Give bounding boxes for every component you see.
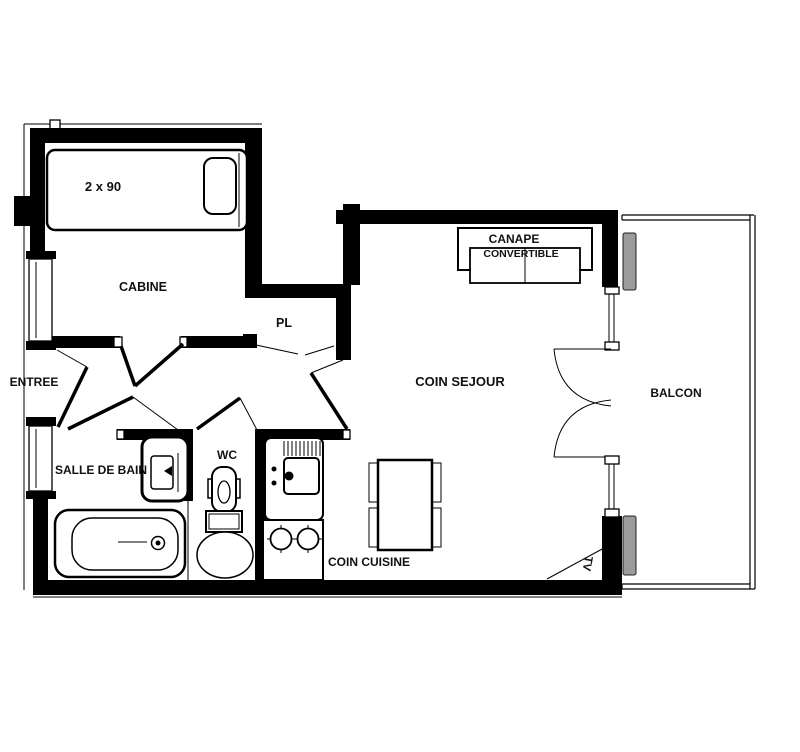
entrance-door (57, 350, 87, 427)
kitchen-unit (263, 438, 323, 580)
wc-door (197, 398, 257, 430)
balcony-facade (554, 233, 636, 575)
label-entree: ENTREE (10, 375, 59, 389)
label-convertible: CONVERTIBLE (483, 248, 558, 260)
label-salle-de-bain: SALLE DE BAIN (55, 463, 147, 477)
glazing-panel-top (623, 233, 636, 290)
label-wc: WC (217, 448, 237, 462)
label-cabine: CABINE (119, 280, 167, 294)
bathroom-door (68, 397, 178, 430)
chair (433, 508, 441, 547)
sejour-door (311, 360, 347, 429)
floorplan-svg: 2 x 90 CABINE PL ENTREE SALLE DE BAIN WC… (0, 0, 800, 752)
label-balcon: BALCON (650, 386, 701, 400)
doors (57, 344, 347, 430)
label-coin-sejour: COIN SEJOUR (415, 374, 505, 389)
chair (369, 463, 377, 502)
pillow (204, 158, 236, 214)
washbasin (142, 437, 188, 501)
glazing-panel-bottom (623, 516, 636, 575)
chair (433, 463, 441, 502)
label-pl: PL (276, 316, 292, 330)
dining-table (369, 460, 441, 550)
label-tv: TV (580, 555, 594, 572)
closet-doors (256, 345, 334, 355)
cabin-door (121, 344, 183, 386)
label-bed-size: 2 x 90 (85, 179, 121, 194)
bathtub (55, 510, 185, 577)
label-canape: CANAPE (489, 232, 540, 246)
hob-block (263, 520, 323, 580)
chair (369, 508, 377, 547)
floorplan-page: 2 x 90 CABINE PL ENTREE SALLE DE BAIN WC… (0, 0, 800, 752)
label-coin-cuisine: COIN CUISINE (328, 555, 410, 569)
toilet (197, 467, 253, 578)
balcony-railing (622, 215, 755, 589)
bed (47, 150, 247, 230)
french-door (554, 349, 611, 457)
tv-corner (547, 548, 604, 579)
